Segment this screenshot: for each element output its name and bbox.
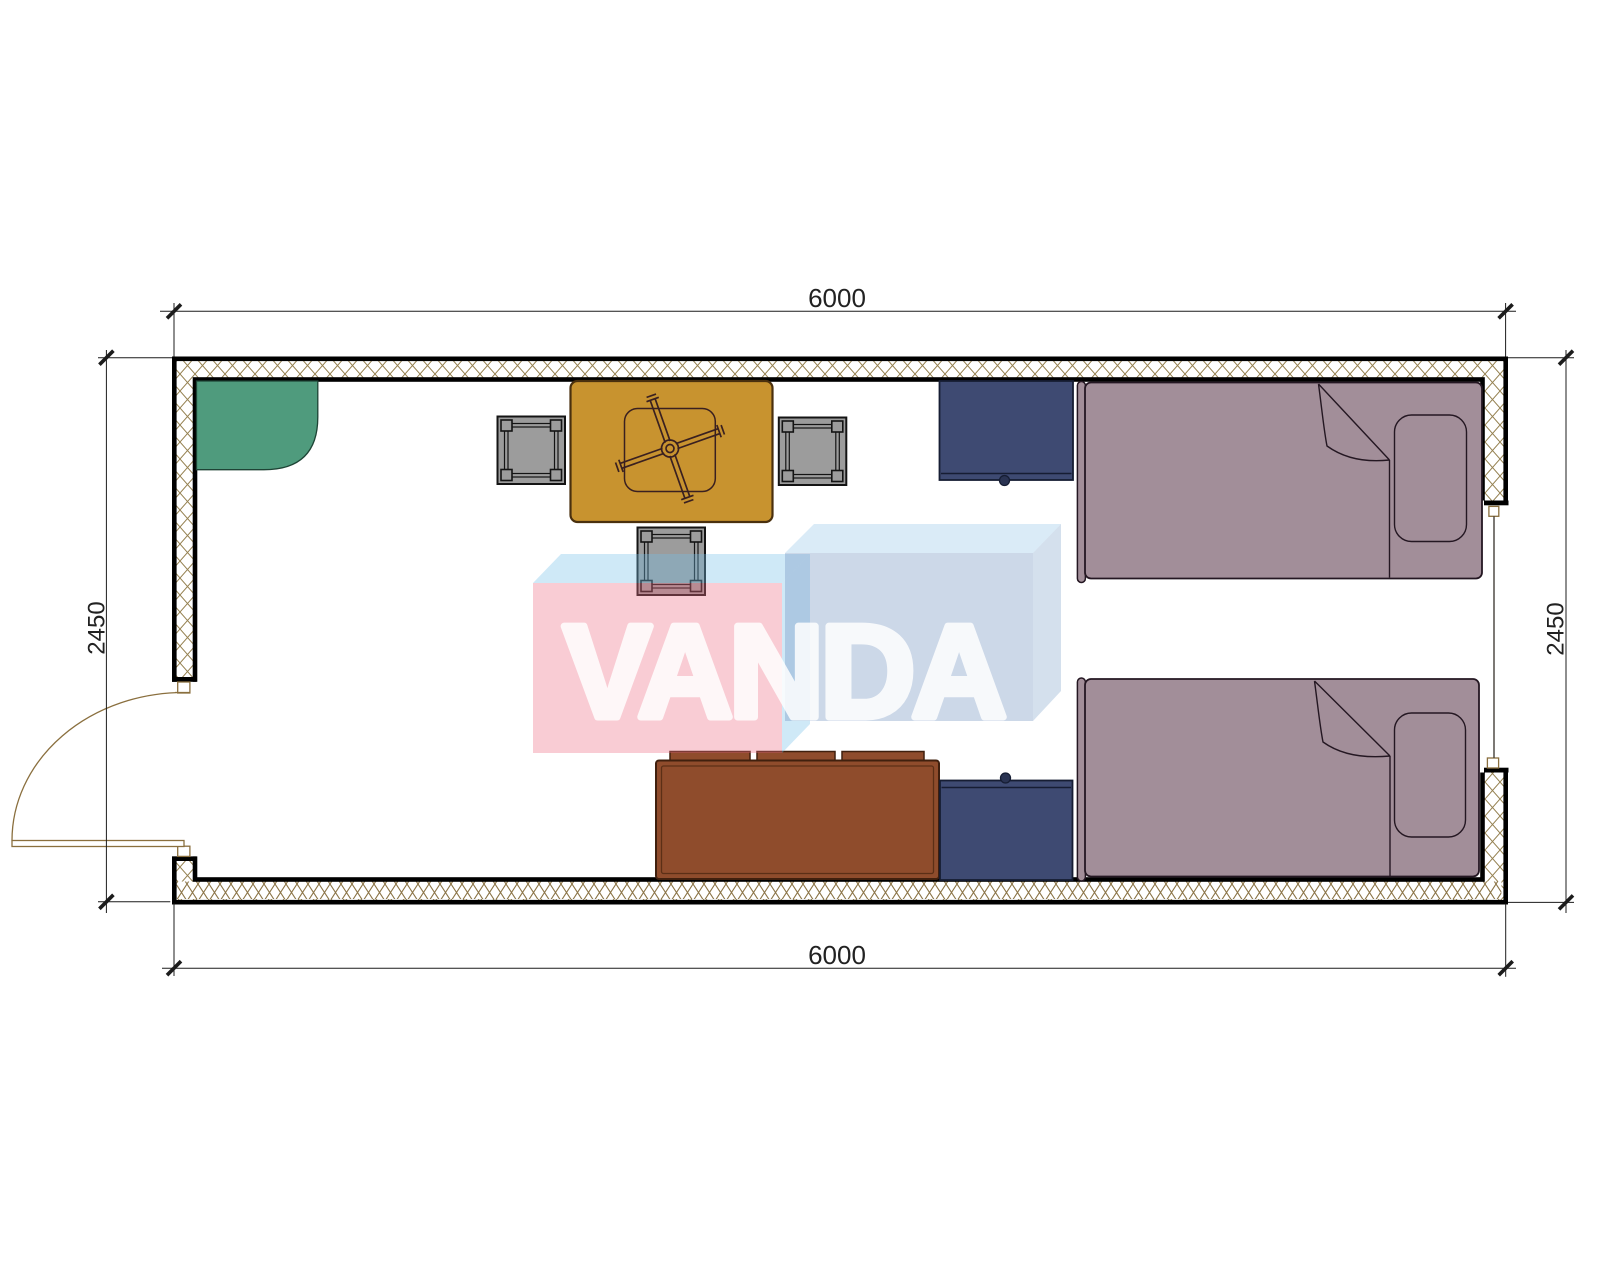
svg-text:VANDA: VANDA (563, 598, 1003, 745)
svg-text:2450: 2450 (84, 601, 111, 654)
svg-text:2450: 2450 (1543, 602, 1570, 655)
svg-text:6000: 6000 (808, 940, 866, 970)
svg-text:6000: 6000 (808, 283, 866, 313)
